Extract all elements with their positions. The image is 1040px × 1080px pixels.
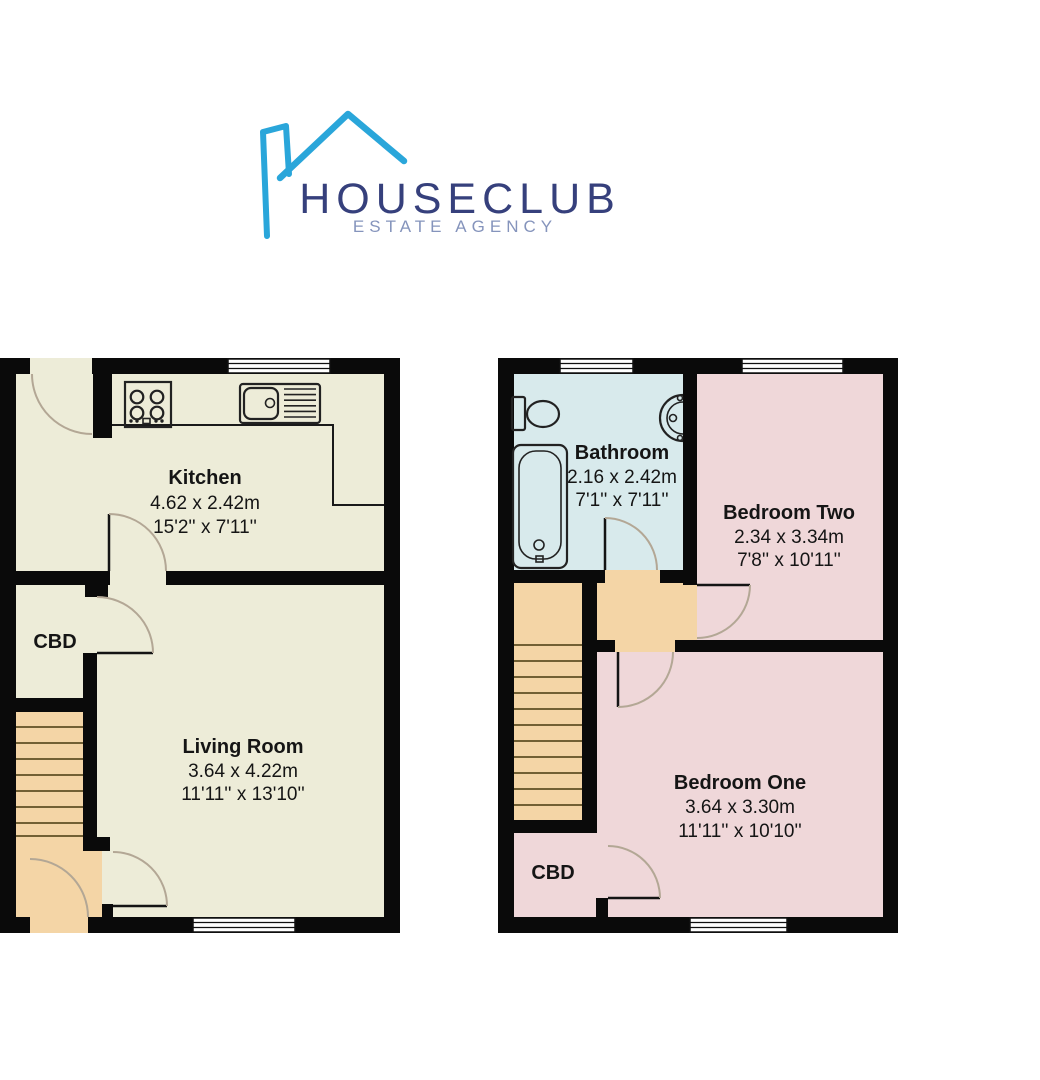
first-cbd-side-stub [596,898,608,917]
bathroom-label: Bathroom 2.16 x 2.42m 7'1'' x 7'11'' [567,442,677,511]
bedroom-two-window [742,359,843,373]
ground-floor-plan: Kitchen 4.62 x 2.42m 15'2'' x 7'11'' Liv… [0,358,400,933]
houseclub-logo: HOUSECLUB ESTATE AGENCY [263,114,621,236]
logo-brand-text: HOUSECLUB [299,175,621,223]
first-staircase-area [514,583,582,820]
hall-top-stub [83,837,110,851]
living-room-name: Living Room [182,736,303,758]
living-room-window [193,918,295,932]
bedroom-one-window [690,918,787,932]
kitchen-entry-wall-stub [93,358,112,438]
cbd-corner-stub [85,585,108,597]
bedroom-two-label: Bedroom Two 2.34 x 3.34m 7'8'' x 10'11'' [723,502,855,571]
bathroom-door-opening [605,570,660,583]
bathroom-bottom-wall-left [514,570,605,583]
living-room-label: Living Room 3.64 x 4.22m 11'11'' x 13'10… [181,736,305,805]
bedroom-one-top-wall-left [597,640,615,652]
cbd-side-wall [83,653,97,698]
logo-tagline-text: ESTATE AGENCY [353,217,557,236]
kitchen-name: Kitchen [168,467,241,489]
back-door-opening [30,358,92,374]
bedroom-two-imperial-dim: 7'8'' x 10'11'' [737,550,841,571]
bedroom-one-metric-dim: 3.64 x 3.30m [685,797,795,818]
bathroom-bedroom-two-wall [683,374,697,585]
living-room-metric-dim: 3.64 x 4.22m [188,761,298,782]
bathroom-name: Bathroom [575,442,669,464]
hall-bottom-stub [102,904,113,917]
floorplan-canvas: HOUSECLUB ESTATE AGENCY [0,0,1040,1080]
kitchen-living-wall [166,571,384,585]
first-cbd-top-wall [514,820,597,833]
bedroom-one-top-wall-right [675,640,883,652]
floorplan-page: HOUSECLUB ESTATE AGENCY [0,0,1040,1080]
bathroom-imperial-dim: 7'1'' x 7'11'' [575,490,668,511]
kitchen-cbd-wall [16,571,110,585]
first-cbd-label: CBD [531,862,574,884]
stairs-side-wall [83,712,97,837]
kitchen-imperial-dim: 15'2'' x 7'11'' [153,517,257,538]
cbd-bottom-wall [16,698,97,712]
bedroom-one-name: Bedroom One [674,772,806,794]
ground-cbd-label: CBD [33,631,76,653]
bedroom-one-door-opening [615,640,675,652]
kitchen-metric-dim: 4.62 x 2.42m [150,493,260,514]
first-floor-plan: Bathroom 2.16 x 2.42m 7'1'' x 7'11'' Bed… [498,358,898,933]
front-door-opening [30,917,88,933]
bedroom-two-name: Bedroom Two [723,502,855,524]
kitchen-window [228,359,330,373]
bedroom-two-metric-dim: 2.34 x 3.34m [734,527,844,548]
bathroom-window [560,359,633,373]
landing-divider-wall [582,585,597,820]
living-room-imperial-dim: 11'11'' x 13'10'' [181,784,305,805]
bathroom-bottom-wall-right [660,570,683,583]
bathroom-metric-dim: 2.16 x 2.42m [567,467,677,488]
logo-house-chimney-stroke [263,126,289,236]
logo-house-roof-stroke [280,114,404,178]
bedroom-one-label: Bedroom One 3.64 x 3.30m 11'11'' x 10'10… [674,772,806,842]
bedroom-one-imperial-dim: 11'11'' x 10'10'' [678,821,802,842]
